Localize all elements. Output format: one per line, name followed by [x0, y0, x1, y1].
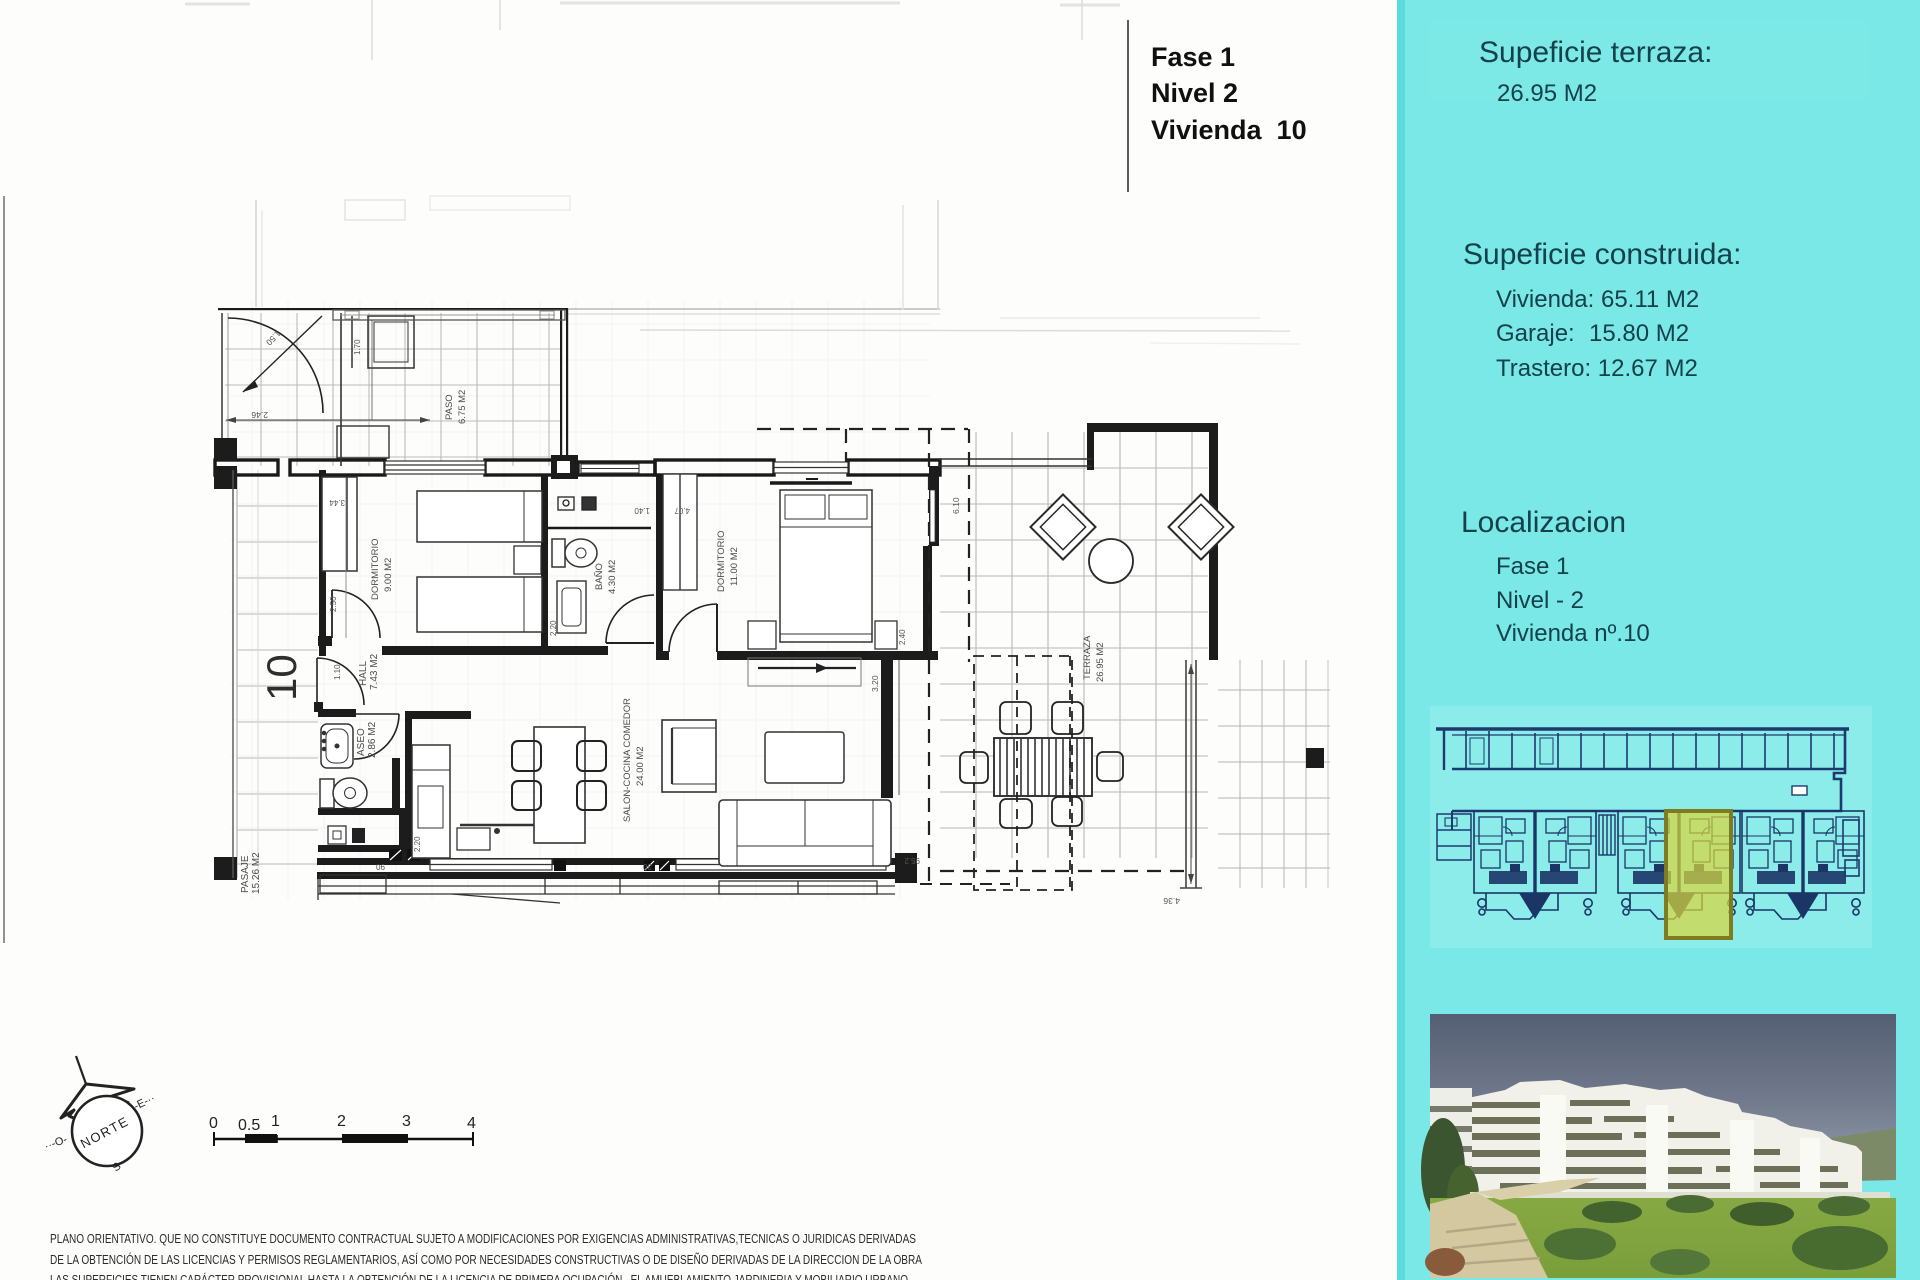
svg-text:Fase 1: Fase 1 [1151, 42, 1235, 72]
svg-text:Vivienda: 65.11 M2: Vivienda: 65.11 M2 [1496, 286, 1699, 313]
svg-text:Supeficie terraza:: Supeficie terraza: [1479, 36, 1712, 69]
svg-text:PASO: PASO [444, 394, 455, 420]
svg-text:30: 30 [643, 862, 652, 871]
svg-text:1.10: 1.10 [333, 664, 342, 680]
svg-text:2.50: 2.50 [329, 596, 338, 612]
svg-text:Trastero: 12.67 M2: Trastero: 12.67 M2 [1496, 355, 1698, 382]
svg-text:4.36: 4.36 [1163, 896, 1180, 906]
svg-text:SALON-COCINA COMEDOR: SALON-COCINA COMEDOR [622, 698, 633, 822]
svg-text:1: 1 [271, 1113, 280, 1130]
svg-text:2.20: 2.20 [549, 620, 558, 636]
svg-text:LAS SUPERFICIES TIENEN CARÁCTE: LAS SUPERFICIES TIENEN CARÁCTER PROVISIO… [50, 1272, 908, 1280]
svg-text:24.00 M2: 24.00 M2 [635, 746, 646, 786]
svg-text:6.10: 6.10 [951, 497, 961, 514]
svg-text:Fase 1: Fase 1 [1496, 553, 1569, 580]
svg-text:9.00 M2: 9.00 M2 [383, 558, 394, 592]
svg-text:ASEO: ASEO [356, 728, 367, 756]
svg-text:DORMITORIO: DORMITORIO [370, 538, 381, 600]
svg-text:DORMITORIO: DORMITORIO [716, 530, 727, 592]
svg-text:2.46: 2.46 [251, 410, 268, 420]
svg-text:15.80 M2: 15.80 M2 [1589, 320, 1689, 347]
svg-text:0: 0 [209, 1115, 218, 1132]
svg-text:4: 4 [467, 1115, 476, 1132]
svg-text:Vivienda nº.10: Vivienda nº.10 [1496, 620, 1650, 647]
svg-text:PLANO ORIENTATIVO. QUE NO CONS: PLANO ORIENTATIVO. QUE NO CONSTITUYE DOC… [50, 1231, 916, 1246]
svg-text:BAÑO: BAÑO [594, 563, 605, 590]
svg-text:2: 2 [337, 1113, 346, 1130]
svg-text:26.95 M2: 26.95 M2 [1095, 642, 1106, 682]
svg-text:90: 90 [376, 862, 385, 871]
svg-text:Vivienda 10: Vivienda 10 [1151, 115, 1307, 145]
svg-text:0.5: 0.5 [238, 1117, 260, 1134]
svg-text:PASAJE: PASAJE [240, 855, 251, 893]
svg-text:3.20: 3.20 [870, 675, 880, 692]
svg-text:7.43 M2: 7.43 M2 [369, 653, 380, 690]
svg-text:95.2: 95.2 [904, 856, 920, 865]
svg-text:TERRAZA: TERRAZA [1082, 635, 1093, 680]
svg-text:3: 3 [402, 1113, 411, 1130]
svg-text:11.00 M2: 11.00 M2 [729, 547, 740, 586]
svg-text:DE LA OBTENCIÓN DE LAS LICENCI: DE LA OBTENCIÓN DE LAS LICENCIAS Y PERMI… [50, 1252, 922, 1267]
svg-text:6.75 M2: 6.75 M2 [457, 390, 468, 424]
svg-text:Nivel - 2: Nivel - 2 [1496, 587, 1584, 614]
svg-text:Garaje:: Garaje: [1496, 320, 1575, 347]
svg-text:3.44: 3.44 [329, 498, 345, 507]
svg-text:HALL: HALL [358, 661, 369, 686]
svg-text:26.95 M2: 26.95 M2 [1497, 80, 1597, 107]
svg-text:Nivel 2: Nivel 2 [1151, 78, 1238, 108]
svg-text:1.40: 1.40 [634, 506, 650, 515]
svg-text:4.30 M2: 4.30 M2 [607, 560, 618, 594]
svg-text:1.70: 1.70 [353, 339, 362, 355]
svg-text:2.86 M2: 2.86 M2 [367, 721, 378, 758]
svg-text:10: 10 [258, 654, 305, 701]
svg-text:15.26 M2: 15.26 M2 [251, 852, 262, 894]
svg-text:Supeficie construida:: Supeficie construida: [1463, 238, 1742, 271]
svg-text:2.20: 2.20 [413, 836, 422, 852]
svg-text:Localizacion: Localizacion [1461, 506, 1626, 539]
svg-text:4.07: 4.07 [674, 506, 690, 515]
svg-text:2.40: 2.40 [898, 629, 907, 645]
